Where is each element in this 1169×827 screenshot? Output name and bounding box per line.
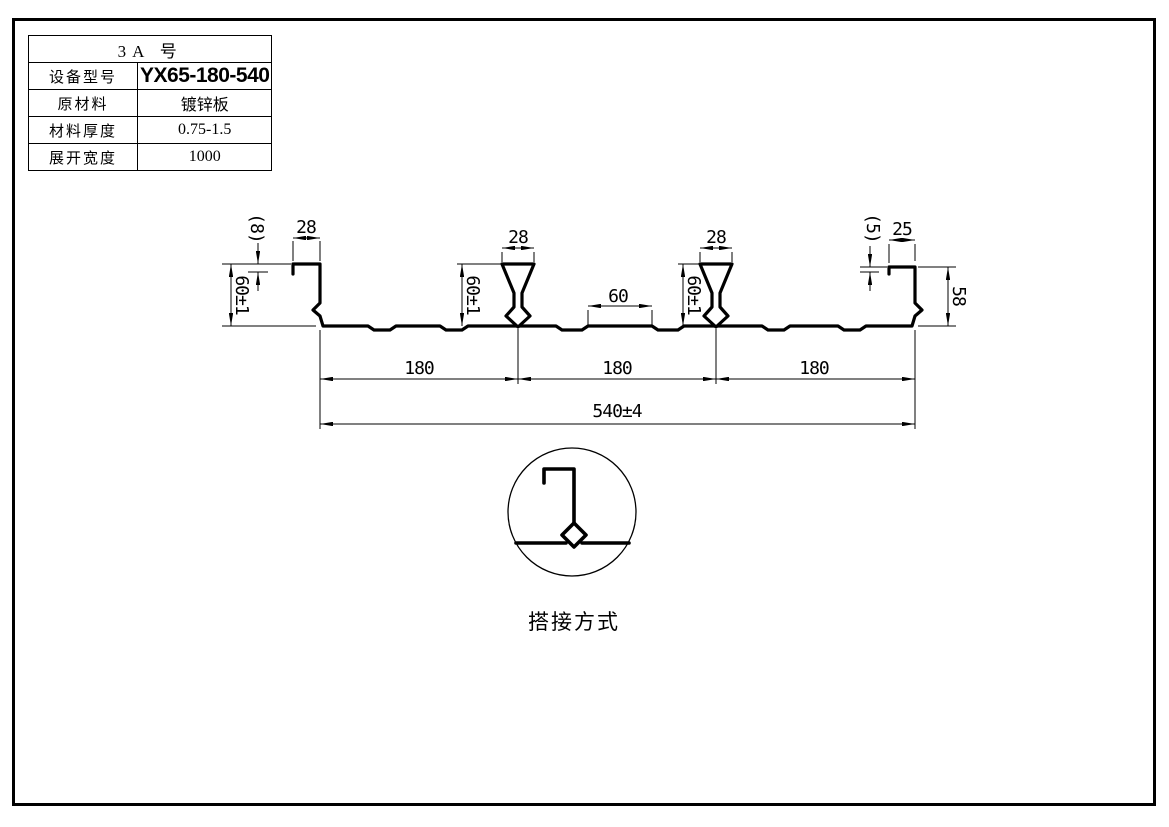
rib-2 [700,264,732,327]
lap-detail-caption: 搭接方式 [528,606,620,636]
rib-1 [502,264,534,327]
dim-rib2-height: 60±1 [684,275,702,314]
dim-rib2-top: 28 [706,229,726,247]
dim-overall-width: 540±4 [592,403,641,421]
dim-flange-left: 28 [296,219,316,237]
dim-rib1-top: 28 [508,229,528,247]
dim-height-right: 58 [949,286,967,306]
profile-drawing [0,0,1169,827]
dim-pitch-1: 180 [404,360,434,378]
dim-pitch-3: 180 [799,360,829,378]
dim-rib1-height: 60±1 [463,275,481,314]
dim-height-left: 60±1 [232,275,250,314]
dim-lip-right: (5) [863,213,881,243]
drawing-sheet: 3A 号 设备型号 YX65-180-540 原材料 镀锌板 材料厚度 0.75… [0,0,1169,827]
dim-lip-left: (8) [247,213,265,243]
dim-pitch-2: 180 [602,360,632,378]
lap-detail [508,448,636,576]
dimension-lines [222,238,956,429]
dim-flange-right: 25 [892,221,912,239]
dim-stiffener-gap: 60 [608,288,628,306]
